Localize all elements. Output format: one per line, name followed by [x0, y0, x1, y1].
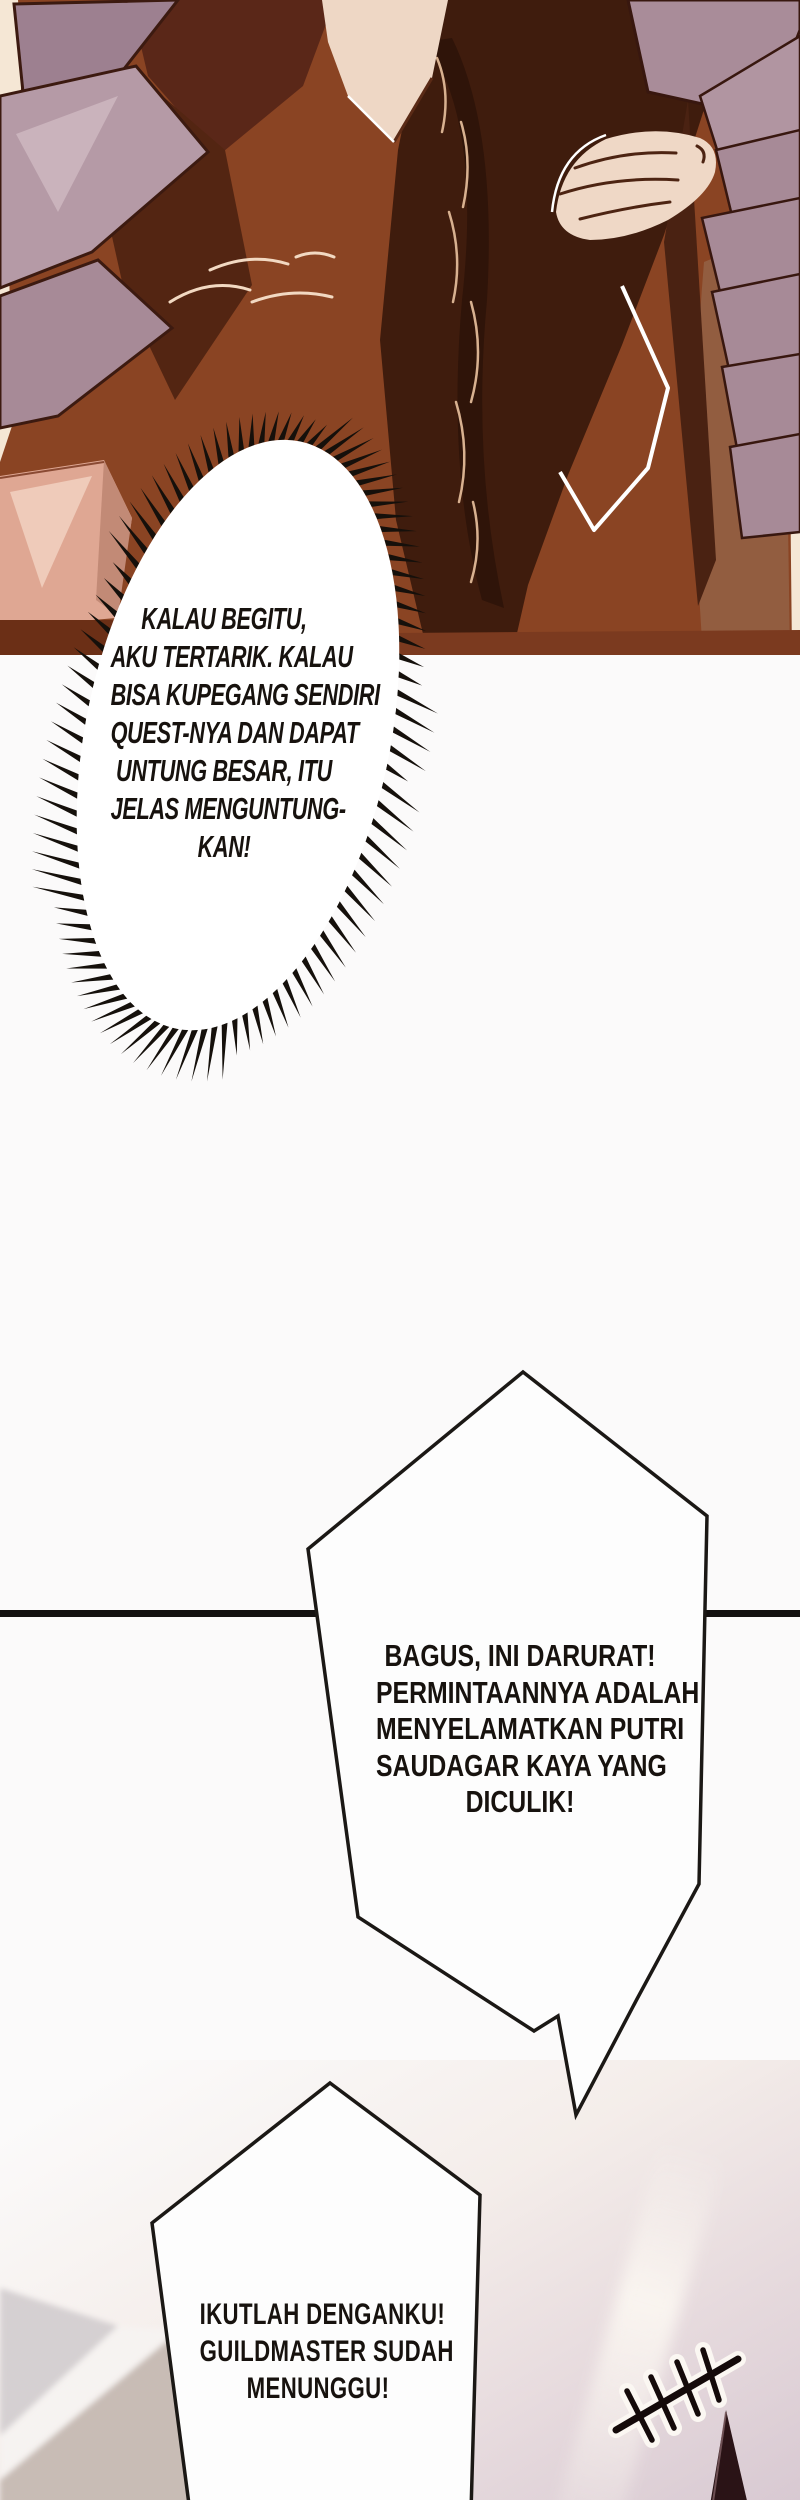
bubble-text-line: JELAS MENGUNTUNG- — [111, 790, 338, 828]
bubble-text-line: KALAU BEGITU, — [111, 600, 338, 638]
overlay-layer — [0, 0, 800, 2500]
bubble-text-line: UNTUNG BESAR, ITU — [111, 752, 338, 790]
tower-spire — [710, 2410, 748, 2500]
bubble-text-line: QUEST-NYA DAN DAPAT — [111, 714, 338, 752]
comic-page: KALAU BEGITU, AKU TERTARIK. KALAU BISA K… — [0, 0, 800, 2500]
bubble-text-line: MENUNGGU! — [200, 2370, 437, 2407]
bubble-text-line: MENYELAMATKAN PUTRI — [376, 1711, 664, 1748]
speech-bubble-follow — [152, 2083, 480, 2500]
bubble-text-line: GUILDMASTER SUDAH — [200, 2333, 437, 2370]
bubble-text-line: KAN! — [111, 828, 338, 866]
bubble-text-line: BISA KUPEGANG SENDIRI — [111, 676, 338, 714]
bubble-text-line: DICULIK! — [376, 1784, 664, 1821]
bubble-text-line: PERMINTAANNYA ADALAH — [376, 1675, 664, 1712]
bubble-text-line: IKUTLAH DENGANKU! — [200, 2296, 437, 2333]
burst-bubble-text: KALAU BEGITU, AKU TERTARIK. KALAU BISA K… — [111, 600, 338, 866]
bubble-text-line: AKU TERTARIK. KALAU — [111, 638, 338, 676]
bubble-text-line: BAGUS, INI DARURAT! — [376, 1638, 664, 1675]
quest-bubble-text: BAGUS, INI DARURAT! PERMINTAANNYA ADALAH… — [376, 1638, 664, 1821]
scratch-mark — [616, 2350, 738, 2440]
follow-bubble-text: IKUTLAH DENGANKU! GUILDMASTER SUDAH MENU… — [200, 2296, 437, 2407]
bubble-text-line: SAUDAGAR KAYA YANG — [376, 1748, 664, 1785]
